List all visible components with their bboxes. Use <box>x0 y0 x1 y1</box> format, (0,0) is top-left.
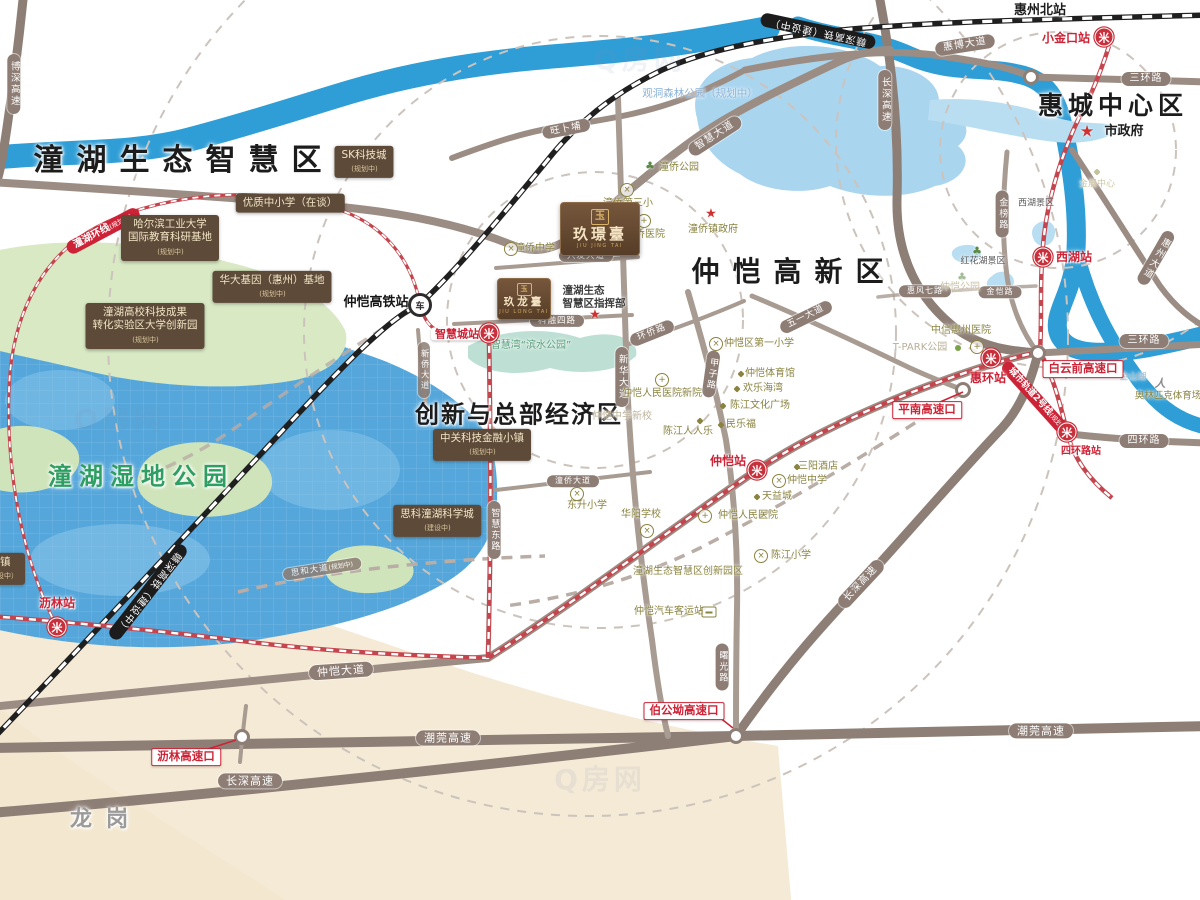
project-name-latin: JIU JING TAI <box>577 243 623 249</box>
dot-icon <box>737 370 744 377</box>
station-label: 智慧城站 <box>431 327 483 340</box>
poi-label: 仲恺公园 <box>940 282 980 294</box>
area-label: 惠城中心区 <box>1038 91 1188 121</box>
poi-label: 仲恺中学新校 <box>592 411 652 423</box>
hosp-icon: + <box>698 509 712 523</box>
road-label: 思和大道(规划中) <box>282 557 362 581</box>
poi-label: 陈江小学 <box>771 550 811 562</box>
poi-label: T-PARK公园 <box>893 342 948 354</box>
poi-label: 陈江文化广场 <box>730 400 790 412</box>
road-label: 惠州大道 <box>1135 229 1177 288</box>
school-icon: × <box>620 183 634 197</box>
station-label: 惠环站 <box>970 371 1006 385</box>
project-name: 玖璟臺 <box>573 226 627 243</box>
station-label: 沥林站 <box>39 596 75 610</box>
facility-box: SK科技城(规划中) <box>334 146 393 178</box>
road-label: 博深高速 <box>7 54 20 114</box>
facility-box: 中关科技金融小镇(规划中) <box>433 429 531 461</box>
poi-label: 中信惠州医院 <box>931 325 991 337</box>
poi-label: 潼湖生态智慧区指挥部 <box>563 284 626 309</box>
highway-exit-badge: 沥林高速口 <box>151 748 221 766</box>
highway-exit-badge: 伯公坳高速口 <box>644 702 725 720</box>
facility-box: 潼湖高校科技成果转化实验区大学创新园(规划中) <box>86 303 205 349</box>
metro-icon: 米 <box>748 461 767 480</box>
road-label: 甲子路 <box>701 350 720 398</box>
tree-icon: ♣ <box>645 160 655 173</box>
road-label: 长深高速 <box>835 557 886 610</box>
road-label: 曙光路 <box>716 644 729 691</box>
school-icon: × <box>570 487 584 501</box>
facility-box: 思科潼湖科学城(建设中) <box>393 505 481 537</box>
rail-icon: 车 <box>408 293 432 317</box>
road-label: 金恺路 <box>979 286 1022 298</box>
area-label: 潼湖湿地公园 <box>48 463 234 492</box>
poi-label: 奥林匹克体育场 <box>1135 390 1200 401</box>
project-logo: 玉玖龙臺JIU LONG TAI <box>497 278 551 320</box>
school-icon: × <box>709 337 723 351</box>
facility-box: 小镇（建设中） <box>0 553 25 585</box>
road-label: 环侨路 <box>628 318 675 347</box>
poi-label: 天益城 <box>762 491 792 503</box>
facility-box: 哈尔滨工业大学国际教育科研基地(规划中) <box>121 215 219 261</box>
facility-box: 优质中小学（在谈） <box>236 194 345 213</box>
project-name-latin: JIU LONG TAI <box>499 309 549 315</box>
road-label: 三环路 <box>1120 334 1169 348</box>
project-logo: 玉玖璟臺JIU JING TAI <box>560 202 640 256</box>
poi-label: 仲恺人民医院新院 <box>622 388 702 400</box>
station-label: 仲恺高铁站 <box>343 295 408 311</box>
map-labels: Q房网Q房网Q房网潼湖生态智慧区仲恺高新区惠城中心区创新与总部经济区潼湖湿地公园… <box>0 0 1200 900</box>
road-label: 潼侨大道 <box>547 475 599 487</box>
dot-icon <box>696 417 703 424</box>
station-label: 小金口站 <box>1042 31 1090 45</box>
poi-label: 金展中心 <box>1079 180 1115 191</box>
road-label: 潮莞高速 <box>1009 723 1073 738</box>
poi-label: 民乐福 <box>726 419 756 431</box>
poi-label: 红花湖景区 <box>960 257 1005 268</box>
road-label: 智慧大道 <box>686 114 744 158</box>
metro-icon: 米 <box>48 618 67 637</box>
star-icon: ★ <box>589 308 601 323</box>
star-icon: ★ <box>1080 122 1094 141</box>
area-label: 龙岗 <box>70 807 142 833</box>
dotg-icon <box>955 345 961 351</box>
watermark: Q房网 <box>74 403 166 437</box>
road-label: 仲恺大道 <box>309 661 374 681</box>
poi-label: 潼侨镇政府 <box>688 224 738 236</box>
area-label: 仲恺高新区 <box>691 255 896 289</box>
project-seal-icon: 玉 <box>517 283 532 296</box>
area-label: 惠州北站 <box>1014 3 1066 19</box>
highway-exit-badge: 白云前高速口 <box>1043 360 1124 378</box>
school-icon: × <box>640 524 654 538</box>
station-label: 四环路站 <box>1061 446 1101 458</box>
hosp-icon: + <box>655 373 669 387</box>
railway-label: 赣深高铁（建设中） <box>759 12 876 50</box>
road-label: 潮莞高速 <box>416 730 480 745</box>
road-label: 惠博大道 <box>934 33 995 56</box>
dot-icon <box>717 421 724 428</box>
station-label: 西湖站 <box>1056 250 1092 264</box>
star-icon: ★ <box>705 207 717 222</box>
watermark: Q房网 <box>554 763 646 797</box>
poi-label: 潼侨公园 <box>659 162 699 174</box>
road-label: 五一大道 <box>778 299 834 335</box>
facility-box: 华大基因（惠州）基地(规划中) <box>213 271 332 303</box>
road-label: 智慧东路 <box>488 501 501 559</box>
poi-label: 华阳学校 <box>621 509 661 521</box>
road-label: 三环路 <box>1122 72 1171 86</box>
highway-exit-badge: 平南高速口 <box>892 401 962 419</box>
dot-icon <box>719 402 726 409</box>
poi-label: 潼侨中学 <box>515 243 555 255</box>
map-root: Q房网Q房网Q房网潼湖生态智慧区仲恺高新区惠城中心区创新与总部经济区潼湖湿地公园… <box>0 0 1200 900</box>
area-label: 潼湖生态智慧区 <box>34 143 335 179</box>
metro-icon: 米 <box>982 349 1001 368</box>
poi-label: 三阳酒店 <box>798 461 838 473</box>
poi-label: 西湖景区 <box>1018 199 1054 210</box>
road-label: 长深高速 <box>218 773 282 788</box>
metro-icon: 米 <box>1095 28 1114 47</box>
road-label: 旺卜埔 <box>541 118 590 140</box>
poi-label: 欢乐海湾 <box>743 383 783 395</box>
road-label: 金榜路 <box>996 191 1009 238</box>
bus-icon <box>702 607 717 618</box>
dot-icon <box>753 493 760 500</box>
metro-icon: 米 <box>480 324 499 343</box>
poi-label: 智慧湾“滨水公园” <box>491 340 571 352</box>
tree-icon: ♣ <box>957 271 967 284</box>
poi-label: 金山湖 <box>1119 373 1146 384</box>
watermark: Q房网 <box>594 43 686 77</box>
poi-label: 潼湖生态智慧区创新园区 <box>633 566 743 578</box>
poi-label: 东升小学 <box>567 500 607 512</box>
poi-label: 仲恺中学 <box>787 475 827 487</box>
runner-icon: 人 <box>1155 375 1166 391</box>
area-label: 市政府 <box>1104 124 1143 140</box>
poi-label: 仲恺汽车客运站 <box>634 606 704 618</box>
railway-label: 赣深高铁（建设中） <box>106 542 189 643</box>
school-icon: × <box>772 474 786 488</box>
tree-icon: ♣ <box>972 245 982 258</box>
poi-label: 陈江人人乐 <box>663 426 713 438</box>
metro-icon: 米 <box>1058 423 1077 442</box>
dot-icon <box>733 385 740 392</box>
poi-label: 仲恺体育馆 <box>745 368 795 380</box>
school-icon: × <box>754 549 768 563</box>
poi-label: 仲恺区第一小学 <box>724 338 794 350</box>
project-seal-icon: 玉 <box>591 209 609 225</box>
dot-icon <box>1093 168 1100 175</box>
school-icon: × <box>504 242 518 256</box>
road-label: 长深高速 <box>878 70 891 130</box>
metro-icon: 米 <box>1034 248 1053 267</box>
poi-label: 仲恺人民医院 <box>718 510 778 522</box>
poi-label: 观洞森林公园（规划中） <box>642 88 758 101</box>
project-name: 玖龙臺 <box>504 297 545 309</box>
hosp-icon: + <box>970 340 984 354</box>
road-label: 四环路 <box>1120 434 1169 448</box>
station-label: 仲恺站 <box>710 454 746 468</box>
road-label: 新侨大道 <box>418 342 430 398</box>
